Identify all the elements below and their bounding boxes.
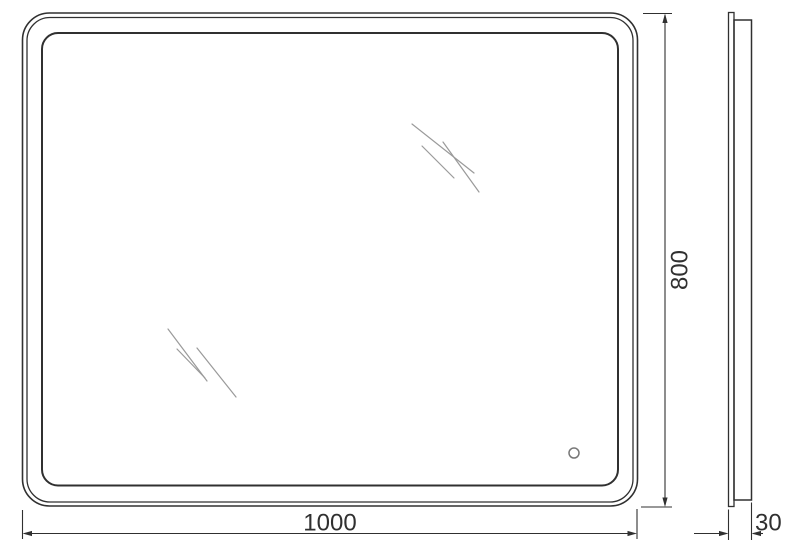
mirror-frame-inner-edge (27, 18, 633, 503)
arrow-down-icon (662, 498, 667, 508)
technical-drawing-canvas: 800 1000 30 (0, 0, 800, 551)
mirror-outer-frame-edge (23, 13, 638, 506)
mirror-side-profile-view (729, 13, 752, 507)
dimension-width-markers: 1000 (23, 510, 638, 537)
mirror-glass-border (42, 33, 618, 486)
dimension-width-label: 1000 (303, 510, 356, 537)
mirror-dimension-drawing: 800 1000 30 (0, 0, 800, 551)
dimension-depth-label: 30 (755, 510, 782, 537)
glass-shine-icon-top (412, 124, 479, 192)
dimension-height-markers: 800 (662, 14, 693, 508)
dimension-height: 800 (641, 14, 694, 508)
touch-sensor-circle-icon (569, 448, 579, 458)
side-view-frame-body (734, 20, 752, 500)
arrow-left-icon (23, 531, 33, 536)
mirror-front-view (23, 13, 638, 506)
shine-line (197, 348, 236, 397)
shine-line (412, 124, 474, 173)
glass-shine-icon-bottom (168, 329, 236, 397)
shine-line (443, 142, 479, 192)
dimension-depth: 30 (694, 503, 782, 541)
dimension-width: 1000 (23, 509, 638, 539)
dimension-height-label: 800 (667, 250, 694, 290)
arrow-up-icon (662, 14, 667, 24)
arrow-right-icon (719, 531, 729, 536)
arrow-right-icon (628, 531, 638, 536)
side-view-glass-pane (729, 13, 735, 507)
